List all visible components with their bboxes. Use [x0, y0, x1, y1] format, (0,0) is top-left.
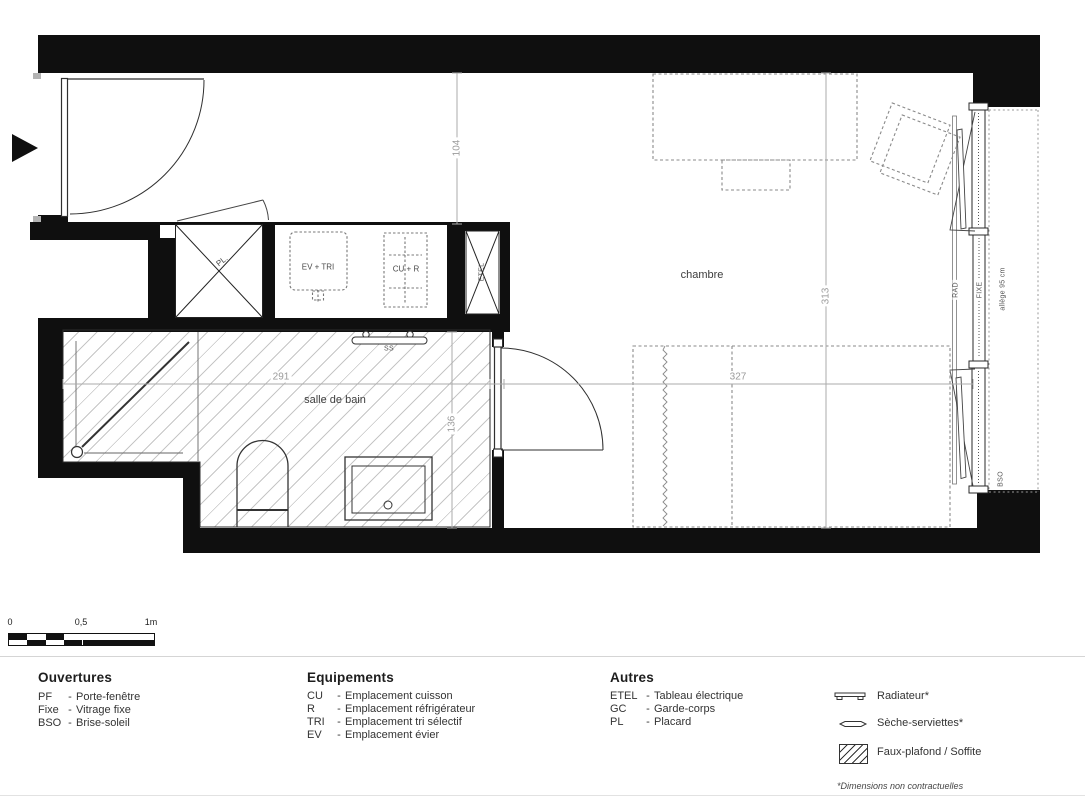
abbr: CU — [307, 690, 333, 702]
separator: - — [333, 690, 345, 702]
legend-item-r: R - Emplacement réfrigérateur — [307, 703, 475, 715]
legend-divider — [0, 656, 1085, 657]
abbr: PL — [610, 716, 642, 728]
entrance-arrow-icon — [12, 134, 38, 162]
towel-dryer-icon — [838, 719, 868, 729]
electrical-panel-label: ETEL — [479, 263, 486, 282]
label: Porte-fenêtre — [76, 691, 140, 703]
legend-item-cu: CU - Emplacement cuisson — [307, 690, 453, 702]
abbr: ETEL — [610, 690, 642, 702]
scale-bar — [8, 633, 155, 646]
abbr: TRI — [307, 716, 333, 728]
wall-shaft-right — [148, 238, 175, 330]
abbr: Fixe — [38, 704, 64, 716]
fixed-glazing-label: FIXE — [977, 280, 984, 301]
abbr: R — [307, 703, 333, 715]
desk-chair — [722, 160, 790, 190]
bed — [633, 346, 950, 527]
radiator-label: RAD — [953, 280, 960, 300]
bathroom-label: salle de bain — [304, 394, 366, 406]
legend-item-gc: GC - Garde-corps — [610, 703, 715, 715]
legend-item-tri: TRI - Emplacement tri sélectif — [307, 716, 462, 728]
legend-others-title: Autres — [610, 670, 654, 685]
separator: - — [642, 703, 654, 715]
legend-item-pl: PL - Placard — [610, 716, 691, 728]
wall-sep-kitchen-etel — [447, 222, 465, 318]
sill-height-label: allège 95 cm — [1000, 265, 1007, 312]
legend-equipment-title: Equipements — [307, 670, 394, 685]
wall-etel-top — [465, 222, 500, 231]
scale-tick-0: 0 — [7, 617, 12, 627]
false-ceiling-swatch — [839, 744, 868, 764]
bathroom-door — [494, 339, 604, 457]
separator: - — [642, 690, 654, 702]
label: Placard — [654, 716, 691, 728]
separator: - — [64, 691, 76, 703]
radiator-symbol-label: Radiateur* — [877, 690, 929, 702]
abbr: GC — [610, 703, 642, 715]
legend-footnote: *Dimensions non contractuelles — [837, 781, 963, 791]
separator: - — [333, 716, 345, 728]
wall-bottom-right-corner — [977, 490, 1040, 553]
false-ceiling-symbol-label: Faux-plafond / Soffite — [877, 746, 981, 758]
radiator-icon — [834, 690, 868, 702]
separator: - — [64, 717, 76, 729]
window-top-leaf — [957, 129, 966, 229]
sink-sorting-label: EV + TRI — [302, 263, 335, 272]
window-top-leaf-swing — [950, 112, 975, 231]
armchair-back — [870, 103, 950, 183]
cooking-fridge-label: CU + R — [393, 265, 419, 274]
abbr: EV — [307, 729, 333, 741]
radiator-line — [953, 116, 957, 484]
label: Emplacement évier — [345, 729, 439, 741]
dim-room-depth: 313 — [821, 286, 832, 307]
label: Vitrage fixe — [76, 704, 131, 716]
wall-kitchen-bottom-band — [38, 318, 510, 332]
label: Tableau électrique — [654, 690, 743, 702]
wall-top — [38, 35, 1040, 73]
wall-sep-pl-kitchen — [263, 222, 275, 318]
wall-etel-bottom — [465, 314, 500, 322]
furniture-dashed — [633, 74, 960, 527]
entry-jamb-bottom — [33, 216, 41, 222]
wall-right-of-etel — [500, 222, 510, 330]
label: Emplacement cuisson — [345, 690, 453, 702]
scale-tick-half: 0,5 — [75, 617, 88, 627]
legend-openings-title: Ouvertures — [38, 670, 112, 685]
separator: - — [333, 729, 345, 741]
bso-outline — [989, 110, 1038, 492]
towel-dryer-symbol-label: Sèche-serviettes* — [877, 717, 963, 729]
label: Brise-soleil — [76, 717, 130, 729]
scale-tick-1m: 1m — [145, 617, 158, 627]
legend-item-pf: PF - Porte-fenêtre — [38, 691, 140, 703]
desk — [653, 74, 857, 160]
legend-item-bso: BSO - Brise-soleil — [38, 717, 130, 729]
wall-shower-bottom — [38, 462, 197, 478]
dim-bathroom-depth: 136 — [447, 414, 458, 435]
wall-top-right-corner — [973, 35, 1040, 107]
legend-item-etel: ETEL - Tableau électrique — [610, 690, 743, 702]
entry-jamb-top — [33, 73, 41, 79]
abbr: BSO — [38, 717, 64, 729]
wall-entry-bottom-band — [30, 222, 160, 240]
bedroom-label: chambre — [681, 269, 724, 281]
label: Garde-corps — [654, 703, 715, 715]
wall-kitchen-front-line — [160, 222, 510, 225]
separator: - — [333, 703, 345, 715]
wall-bath-east-top — [492, 325, 504, 347]
legend-item-fixe: Fixe - Vitrage fixe — [38, 704, 131, 716]
dim-entry-depth: 104 — [452, 138, 463, 159]
floor-plan-page: chambre salle de bain EV + TRI CU + R PL… — [0, 0, 1085, 800]
page-bottom-line — [0, 795, 1085, 796]
abbr: PF — [38, 691, 64, 703]
armchair — [880, 115, 960, 195]
separator: - — [642, 716, 654, 728]
entry-door — [62, 79, 205, 217]
separator: - — [64, 704, 76, 716]
window-bottom-leaf-swing — [950, 369, 975, 486]
bed-zigzag — [663, 346, 667, 526]
label: Emplacement réfrigérateur — [345, 703, 475, 715]
exterior-notch-cover — [30, 478, 183, 560]
dim-bathroom-width: 291 — [271, 372, 292, 383]
wall-bathroom-left — [38, 318, 63, 478]
closet-label: PL. — [214, 254, 229, 268]
towel-dryer-label: SS — [384, 346, 394, 353]
sun-shade-label: BSO — [998, 469, 1005, 489]
window-bottom-leaf — [956, 377, 966, 479]
label: Emplacement tri sélectif — [345, 716, 462, 728]
wall-bottom — [196, 528, 1040, 553]
legend-item-ev: EV - Emplacement évier — [307, 729, 439, 741]
dim-bedroom-width: 327 — [728, 372, 749, 383]
wall-bath-east-bottom — [492, 450, 504, 530]
